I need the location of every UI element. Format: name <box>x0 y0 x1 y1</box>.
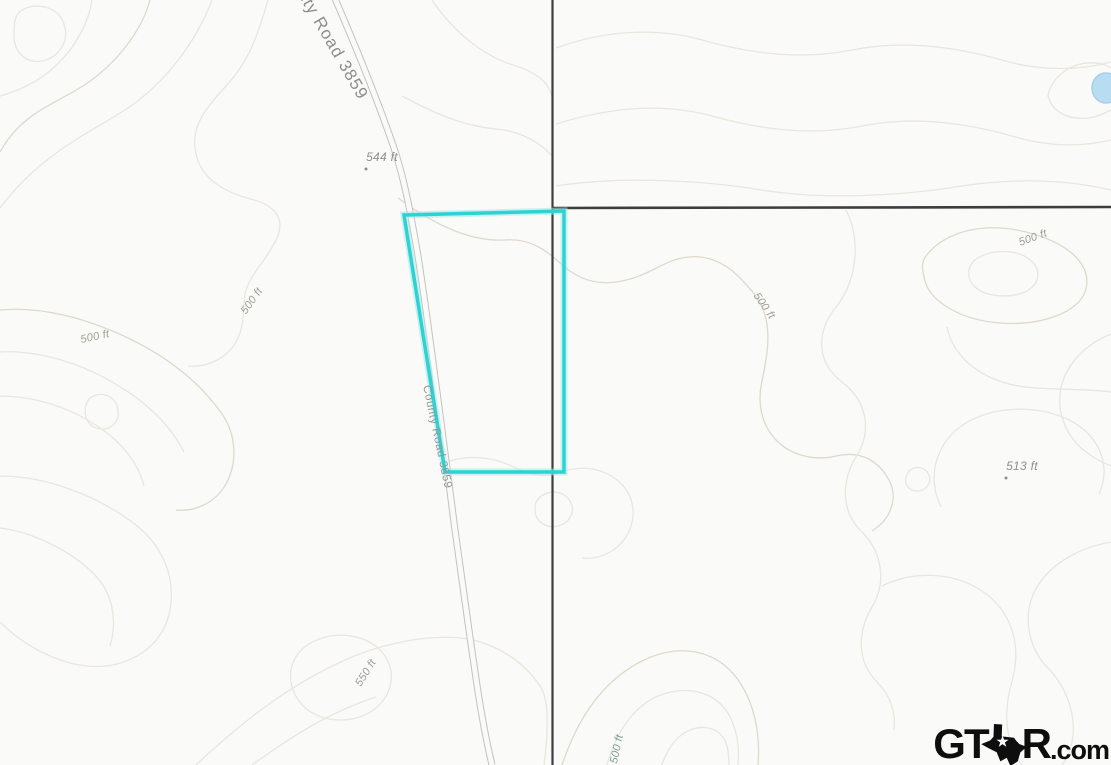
contour-lines <box>0 0 1111 765</box>
contour-line <box>923 228 1087 324</box>
contour-line <box>0 0 150 152</box>
contour-line <box>252 697 376 765</box>
contour-line <box>0 0 212 208</box>
road-surface <box>333 0 492 765</box>
gtar-watermark: GT ★ R .com <box>933 723 1109 765</box>
contour-line <box>906 468 930 491</box>
contour-line <box>607 691 738 765</box>
contour-line <box>947 327 1111 392</box>
contour-line <box>822 210 895 730</box>
contour-line <box>662 727 729 765</box>
contour-line <box>398 198 893 531</box>
watermark-r-text: R <box>1022 723 1050 765</box>
contour-line <box>85 394 118 429</box>
contour-line <box>188 0 280 366</box>
contour-line <box>0 396 144 486</box>
boundary-lines <box>552 0 1111 765</box>
boundary-line-horizontal <box>552 207 1111 208</box>
contour-line <box>0 476 171 667</box>
contour-line <box>556 32 1111 68</box>
contour-line <box>0 352 184 452</box>
contour-line <box>0 528 113 646</box>
map-canvas[interactable]: County Road 3859 County Road 3859 544 ft… <box>0 0 1111 765</box>
contour-line <box>969 252 1038 296</box>
contour-line <box>196 637 547 765</box>
road-casing <box>333 0 492 765</box>
contour-line <box>556 108 1111 145</box>
texas-star-icon: ★ <box>981 724 1027 765</box>
contour-line <box>0 309 234 510</box>
county-road <box>333 0 492 765</box>
contour-line <box>1060 334 1111 466</box>
spot-elevation-dot <box>1005 477 1008 480</box>
spot-elevation-dot <box>365 168 368 171</box>
contour-line <box>562 651 759 765</box>
watermark-com-text: .com <box>1050 737 1109 765</box>
watermark-gt-text: GT <box>933 723 987 765</box>
contour-line <box>535 492 572 527</box>
contour-line <box>402 96 552 156</box>
contour-line <box>0 0 92 96</box>
map-linework <box>0 0 1111 765</box>
pond-water <box>1092 73 1111 103</box>
svg-text:★: ★ <box>996 734 1009 749</box>
contour-line <box>556 180 1111 196</box>
contour-line <box>432 0 552 96</box>
contour-line <box>934 409 1104 507</box>
contour-line <box>14 6 66 61</box>
